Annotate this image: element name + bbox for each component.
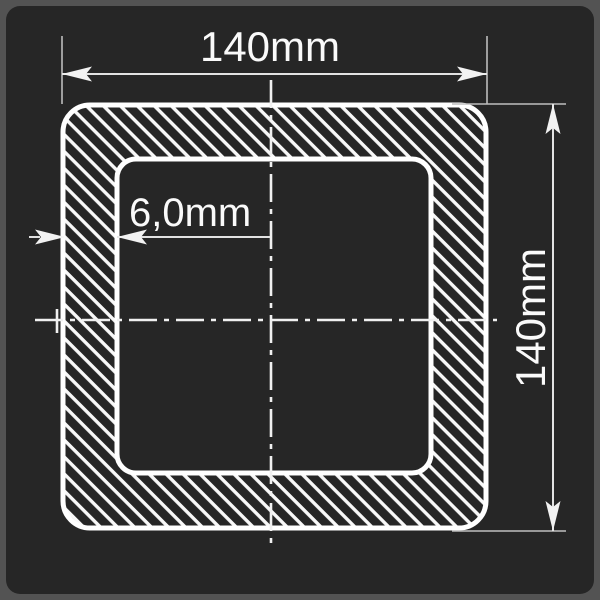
width-dimension-label: 140mm <box>200 23 340 70</box>
dimension-width: 140mm <box>62 23 487 104</box>
cross-section-drawing: 140mm 140mm 6,0mm <box>0 0 600 600</box>
drawing-canvas: 140mm 140mm 6,0mm <box>0 0 600 600</box>
tube-profile <box>63 105 486 528</box>
thickness-dimension-label: 6,0mm <box>129 191 251 235</box>
height-dimension-label: 140mm <box>507 248 554 388</box>
